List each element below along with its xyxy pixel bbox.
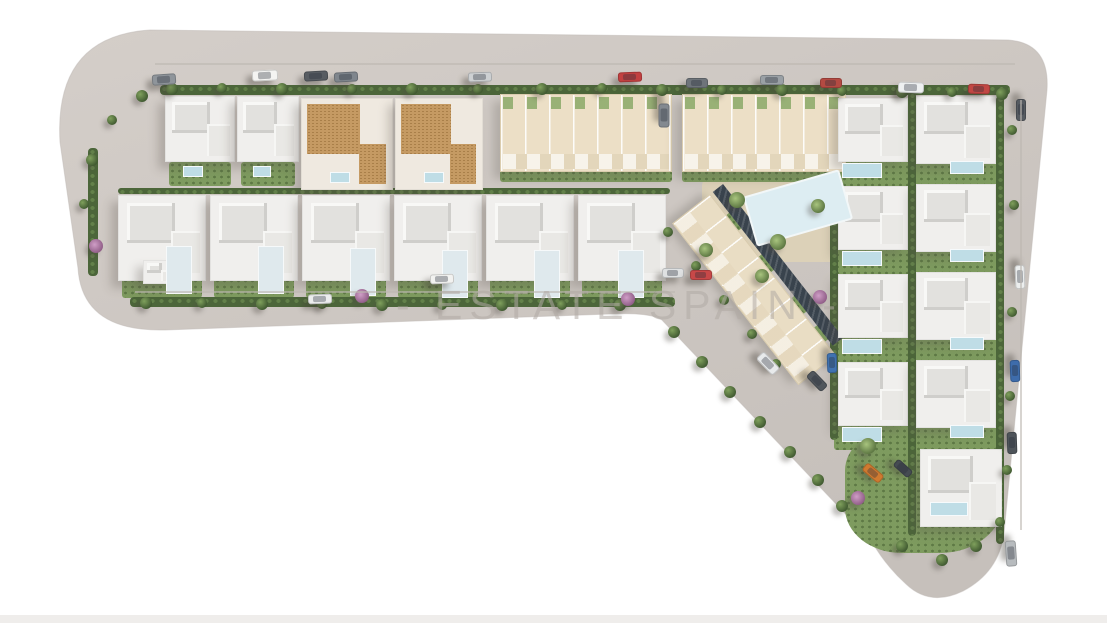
tree-icon: [136, 90, 148, 102]
villa: [237, 96, 299, 162]
villa: [916, 96, 996, 164]
tree-icon: [747, 329, 757, 339]
tree-icon: [947, 87, 957, 97]
villa-pool: [424, 172, 444, 183]
villa-pool: [842, 339, 882, 354]
car: [1010, 360, 1021, 382]
tree-icon: [197, 298, 207, 308]
villa: [838, 362, 908, 426]
villa-pool: [842, 163, 882, 178]
villa: [486, 195, 574, 281]
tree-icon: [696, 356, 708, 368]
tree-icon: [166, 83, 178, 95]
palm-tree-icon: [770, 234, 786, 250]
villa: [916, 272, 996, 340]
villa-pool: [950, 425, 984, 438]
villa: [838, 274, 908, 338]
tree-icon: [717, 85, 727, 95]
tree-icon: [1009, 200, 1019, 210]
tree-icon: [970, 540, 982, 552]
flowering-tree-icon: [89, 239, 103, 253]
tree-icon: [784, 446, 796, 458]
villa-patio: [258, 246, 284, 294]
car: [968, 84, 990, 95]
tree-icon: [406, 83, 418, 95]
tree-icon: [812, 474, 824, 486]
site-plan-render: - ESTATE SPAIN -: [0, 0, 1107, 623]
tree-icon: [1002, 465, 1012, 475]
villa-pool: [253, 166, 271, 177]
watermark-text: - ESTATE SPAIN -: [396, 282, 843, 329]
tree-icon: [663, 227, 673, 237]
villa-pool: [183, 166, 203, 177]
car: [304, 70, 328, 81]
tree-icon: [996, 88, 1008, 100]
villa: [916, 184, 996, 252]
palm-tree-icon: [699, 243, 713, 257]
tree-icon: [536, 83, 548, 95]
tree-icon: [1005, 391, 1015, 401]
tree-icon: [217, 83, 227, 93]
car: [468, 72, 492, 83]
road-curb-line: [1020, 100, 1022, 530]
photo-edge-strip: [0, 615, 1107, 623]
palm-tree-icon: [755, 269, 769, 283]
tree-icon: [1007, 125, 1017, 135]
flowering-tree-icon: [851, 491, 865, 505]
hedge: [88, 148, 98, 276]
car: [308, 294, 332, 305]
tree-icon: [86, 154, 98, 166]
tree-icon: [376, 299, 388, 311]
palm-tree-icon: [811, 199, 825, 213]
tree-icon: [754, 416, 766, 428]
villa-pool: [950, 249, 984, 262]
tree-icon: [107, 115, 117, 125]
villa: [838, 98, 908, 162]
villa: [394, 195, 482, 281]
palm-tree-icon: [729, 192, 745, 208]
tree-icon: [836, 500, 848, 512]
villa: [210, 195, 298, 281]
road-curb-line: [155, 63, 1015, 65]
villa-pool: [930, 502, 968, 516]
car: [827, 353, 838, 373]
tree-icon: [1007, 307, 1017, 317]
villa: [165, 96, 235, 162]
palm-tree-icon: [860, 438, 876, 454]
villa-pool: [950, 337, 984, 350]
car: [662, 268, 684, 278]
villa-pool: [842, 251, 882, 266]
car: [686, 78, 708, 88]
tree-icon: [656, 84, 668, 96]
car: [618, 72, 642, 83]
tree-icon: [597, 83, 607, 93]
car: [152, 73, 177, 86]
villa: [302, 195, 390, 281]
tree-icon: [347, 84, 357, 94]
car: [1007, 432, 1018, 454]
car: [659, 104, 670, 128]
hedge: [118, 188, 670, 194]
car: [1005, 540, 1018, 567]
tree-icon: [140, 297, 152, 309]
townhouse-block: [682, 94, 846, 172]
tree-icon: [776, 84, 788, 96]
villa-patio: [166, 246, 192, 294]
tree-icon: [724, 386, 736, 398]
tree-icon: [473, 84, 483, 94]
tree-icon: [276, 83, 288, 95]
car: [690, 270, 712, 280]
car: [760, 75, 784, 85]
car: [820, 78, 842, 88]
villa: [916, 360, 996, 428]
car: [898, 82, 924, 94]
tree-icon: [256, 298, 268, 310]
car: [252, 69, 279, 81]
car: [806, 370, 828, 393]
townhouse-block: [500, 94, 672, 172]
villa-pool: [330, 172, 350, 183]
tree-icon: [79, 199, 89, 209]
tree-icon: [936, 554, 948, 566]
villa-pool: [950, 161, 984, 174]
tree-icon: [896, 540, 908, 552]
car: [334, 71, 358, 82]
tree-icon: [995, 517, 1005, 527]
